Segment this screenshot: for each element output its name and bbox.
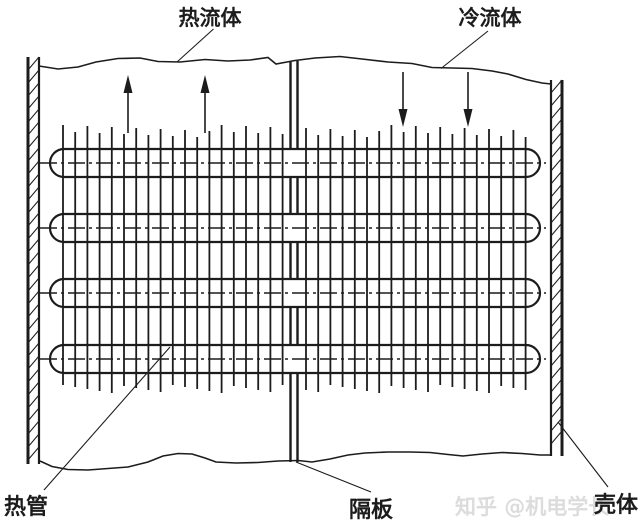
top-shell-edge [39, 57, 551, 85]
bottom-shell-edge [40, 452, 551, 470]
partition-label: 隔板 [349, 498, 394, 523]
partition-leader [296, 462, 371, 492]
tube-centerlines-group [40, 163, 546, 359]
shell-label: 壳体 [593, 493, 639, 518]
left-shell-wall [28, 57, 39, 464]
heat-pipe-exchanger-figure: 知乎 @机电学长 热流体 冷流体 热管 隔板 壳体 [0, 0, 640, 530]
partition-plate [291, 61, 298, 462]
hot-flow-arrows [124, 75, 210, 133]
right-shell-wall [551, 80, 562, 456]
hot-fluid-label: 热流体 [179, 6, 243, 30]
cold-fluid-leader [441, 31, 488, 69]
cold-fluid-label: 冷流体 [459, 6, 523, 30]
fin-lines-group [63, 125, 526, 393]
heat-pipe-label: 热管 [4, 494, 48, 520]
heat-exchanger-diagram: 知乎 @机电学长 热流体 冷流体 热管 隔板 壳体 [0, 0, 640, 530]
shell-leader [558, 422, 608, 487]
watermark-text: 知乎 @机电学长 [455, 495, 610, 519]
cold-flow-arrows [399, 72, 473, 127]
hot-fluid-leader [177, 29, 214, 62]
